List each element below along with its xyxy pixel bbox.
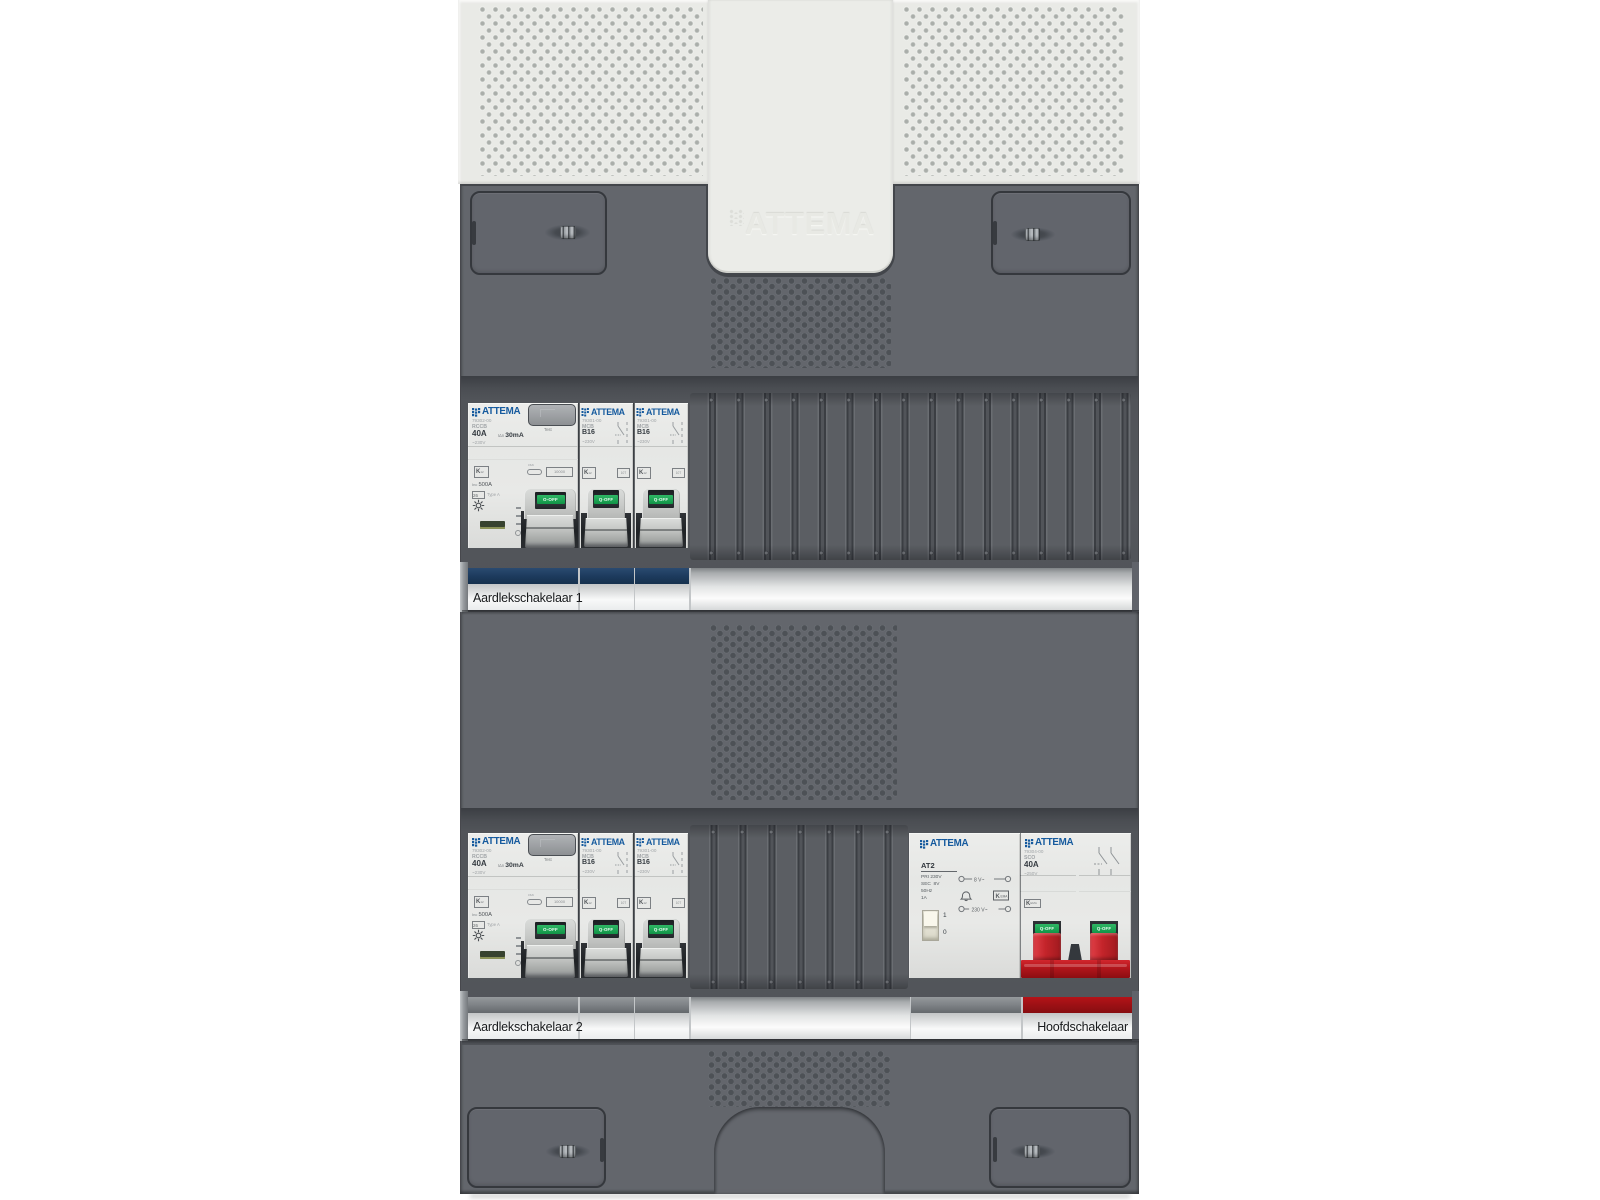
- svg-text:230 V~: 230 V~: [972, 907, 988, 913]
- svg-text:8 V~: 8 V~: [974, 877, 985, 883]
- svg-text:EMA: EMA: [1001, 895, 1009, 899]
